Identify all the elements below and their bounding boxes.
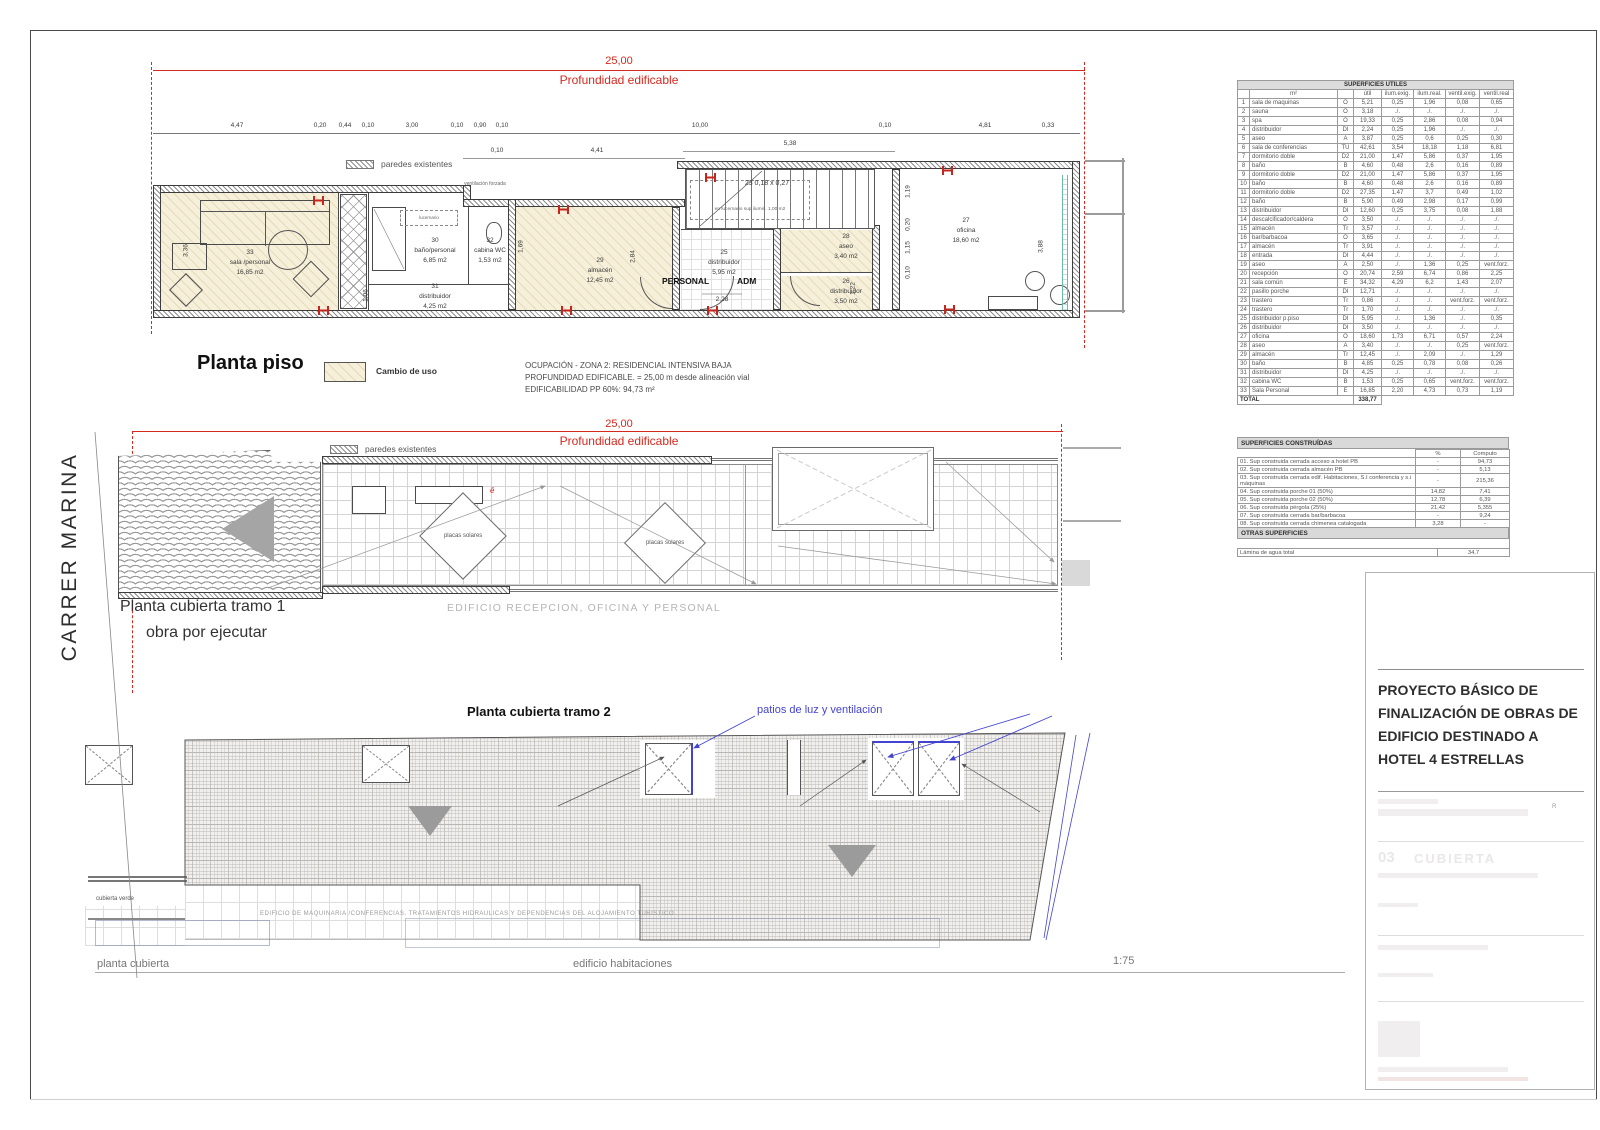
dim-label: 0,10 (487, 122, 517, 129)
table-row: 33Sala PersonalE 16,852,204,73 0,731,19 (1238, 387, 1514, 396)
piso-boundary-right (1084, 62, 1085, 348)
door-dim: 2,28 (702, 296, 742, 303)
wall-segment (773, 225, 781, 310)
walls-legend-label: paredes existentes (365, 444, 475, 454)
vent-forzada-label: ventilación forzada (460, 181, 510, 188)
red-marker (944, 305, 955, 314)
construidas-col-pct: % (1416, 450, 1461, 458)
faint-structure (95, 920, 270, 946)
title-block: PROYECTO BÁSICO DE FINALIZACIÓN DE OBRAS… (1365, 572, 1595, 1090)
table-row: 15almacénTr 3,57./../. ./../. (1238, 225, 1514, 234)
patio-xbox (918, 741, 960, 796)
table-row: 2saunaO 3,18./../. ./../. (1238, 108, 1514, 117)
table-row: 1sala de maquinasO 5,210,251,96 0,080,65 (1238, 99, 1514, 108)
red-drain-symbol: ȇ (490, 486, 494, 495)
faint-text-bar (1378, 903, 1418, 907)
utiles-header: ilum.exig. (1382, 90, 1414, 99)
wall-segment (463, 199, 685, 207)
chair (1025, 271, 1045, 291)
skylight-xbox (362, 745, 410, 783)
frame-top (30, 30, 1597, 31)
table-row: 29almacénTr 12,45./.2,09 ./.1,29 (1238, 351, 1514, 360)
piso-red-dim-line (153, 70, 1085, 71)
dim-label: 2,84 (630, 242, 637, 272)
partition (338, 193, 339, 310)
construidas-col-computo: Computo (1461, 450, 1510, 458)
room-label: 31distribuidor4,25 m2 (390, 282, 480, 311)
drawing-sheet: CARRER MARINA 25,00 Profundidad edificab… (0, 0, 1600, 1130)
scale-label: 1:75 (1113, 955, 1134, 967)
dim-label: 1,19 (905, 177, 912, 207)
tramo2-caption: EDIFICIO DE MAQUINARIA /CONFERENCIAS. TR… (260, 911, 690, 917)
wall-segment (153, 185, 161, 318)
lucernario-label: lucernario (401, 215, 457, 220)
tramo2-title: Planta cubierta tramo 2 (467, 704, 611, 719)
dim-label: 4,81 (970, 122, 1000, 129)
table-row: 4distribuidorDI 2,240,251,96 ./../. (1238, 126, 1514, 135)
table-row: 07. Sup construida cerrada bar/barbacoa-… (1238, 512, 1510, 520)
table-row: 8bañoB 4,600,482,6 0,160,89 (1238, 162, 1514, 171)
table-row: 3spaO 19,330,252,86 0,080,94 (1238, 117, 1514, 126)
faint-red-text-bar (1378, 1077, 1528, 1081)
faint-text-bar (1378, 799, 1438, 804)
table-row: 31distribuidorDI 4,25./../. ./../. (1238, 369, 1514, 378)
table-row: 04. Sup construida porche 01 (50%)14,827… (1238, 488, 1510, 496)
room-label: 26distribuidor3,50 m2 (801, 277, 891, 306)
tramo1-red-dim-label: Profundidad edificable (549, 434, 689, 448)
slope-triangle (408, 806, 452, 836)
personal-label: PERSONAL (662, 276, 702, 286)
dim-label: 0,10 (870, 122, 900, 129)
piso-dim-line2 (463, 158, 685, 159)
table-row: 14descalcificador/calderaO 3,50./../. ./… (1238, 216, 1514, 225)
piso-red-dim-value: 25,00 (589, 55, 649, 67)
title-block-rule (1378, 791, 1584, 792)
table-row: 16bar/barbacoaO 3,65./../. ./../. (1238, 234, 1514, 243)
tiled-roof-existing (118, 450, 321, 598)
green-roof-edge (88, 876, 187, 882)
table-row: 01. Sup construida cerrada acceso a hote… (1238, 458, 1510, 466)
stair-note: 23 0,18 x 0,27 (712, 180, 822, 187)
patios-annotation: patios de luz y ventilación (757, 704, 882, 716)
patio-xbox (872, 741, 914, 796)
table-row: Lámina de agua total34,7 (1238, 549, 1510, 557)
utiles-total-value: 338,77 (1354, 396, 1382, 405)
faint-text-bar (1378, 945, 1488, 950)
superficies-utiles-table: SUPERFICIES UTILES m² útil ilum.exig. il… (1237, 80, 1513, 405)
patio-xbox (645, 743, 693, 795)
adjacent-structure (1085, 213, 1125, 215)
cambio-uso-swatch (324, 362, 366, 382)
piso-red-dim-label: Profundidad edificable (549, 73, 689, 87)
table-row: 19aseoA 2,50./.1,36 0,25vent.forz. (1238, 261, 1514, 270)
faint-sheet-title: CUBIERTA (1414, 851, 1496, 866)
table-row: 17almacénTr 3,91./../. ./../. (1238, 243, 1514, 252)
bottom-rule (95, 972, 1345, 973)
red-marker (942, 166, 953, 175)
dim-label: 1,69 (518, 232, 525, 262)
red-marker (561, 306, 572, 315)
dim-label: 1,06 (363, 281, 370, 311)
side-table (172, 243, 207, 270)
utiles-header: útil (1354, 90, 1382, 99)
frame-right (1596, 30, 1597, 1100)
construidas-title: SUPERFICIES CONSTRUÍDAS (1237, 437, 1509, 449)
skylight (772, 447, 934, 531)
dim-label: 1,22 (850, 274, 857, 304)
desk (988, 296, 1038, 310)
dim-label: 4,41 (582, 147, 612, 154)
table-row: 26distribuidorDI 3,50./../. ./../. (1238, 324, 1514, 333)
adjacent-structure (1085, 310, 1125, 312)
table-row: 30bañoB 4,850,250,78 0,080,26 (1238, 360, 1514, 369)
wall-segment (153, 310, 1080, 318)
dim-label: 5,38 (775, 140, 805, 147)
slope-triangle (828, 845, 876, 877)
slope-triangle (222, 496, 274, 562)
utiles-header-m2: m² (1250, 90, 1338, 99)
frame-left (30, 30, 31, 1100)
frame-bottom (30, 1099, 1597, 1100)
adjacent-structure (1085, 160, 1125, 162)
utiles-title: SUPERFICIES UTILES (1238, 81, 1514, 90)
utiles-header: ventil.real (1480, 90, 1514, 99)
roof-hatch-box (352, 486, 386, 514)
title-block-rule-faint (1378, 1001, 1584, 1002)
roof-joint (745, 464, 746, 586)
otras-superficies-table: OTRAS SUPERFICIES Lámina de agua total34… (1237, 527, 1509, 557)
cambio-uso-label: Cambio de uso (376, 366, 437, 376)
tramo1-title: Planta cubierta tramo 1 (120, 598, 285, 616)
wall-segment (892, 169, 900, 310)
piso-title: Planta piso (197, 352, 304, 375)
faint-text-bar (1378, 1067, 1508, 1072)
wall-segment (153, 185, 471, 193)
utiles-total-label: TOTAL (1238, 396, 1354, 405)
adjacent-structure (1063, 520, 1121, 522)
table-row: 7dormitorio dobleD2 21,001,475,86 0,371,… (1238, 153, 1514, 162)
dim-label: 0,10 (482, 147, 512, 154)
utiles-header: ventil.exig. (1446, 90, 1480, 99)
tramo1-red-dim-line (133, 431, 1063, 432)
table-row: 03. Sup construida cerrada edif. Habitac… (1238, 474, 1510, 488)
title-block-rule-faint (1378, 841, 1584, 842)
adjacent-structure (1122, 158, 1124, 313)
table-row: 24trasteroTr 1,70./../. ./../. (1238, 306, 1514, 315)
table-row: 13distribuidorDI 12,600,253,75 0,081,88 (1238, 207, 1514, 216)
tramo1-caption: EDIFICIO RECEPCION, OFICINA Y PERSONAL (447, 602, 721, 614)
table-row: 6sala de conferenciasTU 42,613,5418,18 1… (1238, 144, 1514, 153)
patio-pillar (787, 740, 801, 795)
label-edificio-habitaciones: edificio habitaciones (573, 958, 672, 970)
skylight-xbox (85, 745, 133, 785)
dim-label: 4,47 (222, 122, 252, 129)
green-roof-label: cubierta verde (96, 896, 134, 902)
table-row: 12bañoB 5,900,492,98 0,170,99 (1238, 198, 1514, 207)
street-name: CARRER MARINA (58, 427, 82, 687)
project-title: PROYECTO BÁSICO DE FINALIZACIÓN DE OBRAS… (1378, 679, 1584, 771)
walls-legend-swatch (346, 160, 374, 169)
dim-label: 10,00 (685, 122, 715, 129)
piso-boundary-left (151, 62, 152, 334)
table-row: 11dormitorio dobleD2 27,351,473,7 0,491,… (1238, 189, 1514, 198)
table-row: 05. Sup construida porche 02 (50%)12,786… (1238, 496, 1510, 504)
table-row: 21sala comúnE 34,324,296,2 1,432,07 (1238, 279, 1514, 288)
piso-dim-line (153, 133, 1080, 134)
table-row: 02. Sup construida cerrada almacén PB-5,… (1238, 466, 1510, 474)
tramo1-red-dim-value: 25,00 (589, 418, 649, 430)
dim-label: 3,36 (183, 236, 190, 266)
table-row: 5aseoA 3,870,250,6 0,250,30 (1238, 135, 1514, 144)
title-block-rule-faint (1378, 935, 1584, 936)
stair-note2: en lucernario sup ilumin. 1,00 m2 (685, 207, 815, 212)
tramo1-subtitle: obra por ejecutar (146, 624, 267, 642)
roof-edge (510, 589, 1058, 592)
wall-segment (1072, 161, 1080, 318)
walls-legend-swatch (330, 445, 358, 454)
red-marker (558, 205, 569, 214)
window-glazing (1062, 175, 1068, 310)
room-label: 28aseo3,40 m2 (801, 232, 891, 261)
adm-label: ADM (737, 276, 773, 286)
adjacent-structure (1062, 560, 1090, 586)
dim-label: 0,33 (1033, 122, 1063, 129)
room-label: 32cabina WC1,53 m2 (455, 236, 525, 265)
dim-label: 3,88 (1038, 232, 1045, 262)
tramo1-boundary-right (1061, 424, 1062, 660)
red-marker (313, 196, 324, 205)
wall-segment (677, 161, 1080, 169)
partition (781, 272, 872, 273)
faint-sheet-number: 03 (1378, 849, 1395, 866)
faint-mark: R (1552, 804, 1556, 810)
adjacent-structure (1063, 447, 1121, 449)
label-planta-cubierta: planta cubierta (97, 958, 169, 970)
faint-text-bar (1378, 973, 1433, 977)
sofa (200, 200, 330, 245)
dim-label: 0,10 (905, 258, 912, 288)
table-row: 27oficinaO 18,601,736,71 0,572,24 (1238, 333, 1514, 342)
table-row: 22pasillo porcheDI 12,71./../. ./../. (1238, 288, 1514, 297)
title-block-rule (1378, 669, 1584, 670)
utiles-header: ilum.real. (1414, 90, 1446, 99)
dim-label: 3,00 (397, 122, 427, 129)
otras-title: OTRAS SUPERFICIES (1237, 527, 1509, 539)
faint-structure (405, 918, 940, 948)
dim-label: 0,10 (353, 122, 383, 129)
table-row: 25distribuidor p.pisoDI 5,95./.1,36 ./.0… (1238, 315, 1514, 324)
room-label: 33sala /personal16,85 m2 (205, 248, 295, 277)
table-row: 9dormitorio dobleD2 21,001,475,86 0,371,… (1238, 171, 1514, 180)
wall-segment (322, 586, 510, 594)
walls-legend-label: paredes existentes (381, 159, 491, 169)
room-label: 25distribuidor5,95 m2 (679, 248, 769, 277)
red-marker (707, 306, 718, 315)
faint-logo (1378, 1021, 1420, 1057)
faint-text-bar (1378, 873, 1538, 878)
table-row: 20recepciónO 20,742,596,74 0,862,25 (1238, 270, 1514, 279)
table-row: 18entradaDI 4,44./../. ./../. (1238, 252, 1514, 261)
lucernario-box: lucernario (400, 210, 458, 226)
piso-dim-line3 (683, 151, 895, 152)
table-row: 23trasteroTr 0,86./../. vent.forz.vent.f… (1238, 297, 1514, 306)
table-row: 28aseoA 3,40./../. 0,25vent.forz. (1238, 342, 1514, 351)
table-row: 06. Sup construida pérgola (25%)21,425,3… (1238, 504, 1510, 512)
table-row: 32cabina WCB 1,530,250,65 vent.forz.vent… (1238, 378, 1514, 387)
table-row: 10bañoB 4,600,482,6 0,160,89 (1238, 180, 1514, 189)
faint-text-bar (1378, 809, 1528, 816)
occupation-notes: OCUPACIÓN - ZONA 2: RESIDENCIAL INTENSIV… (525, 360, 855, 396)
wall-segment (322, 456, 712, 464)
red-marker (318, 306, 329, 315)
room-label: 27oficina18,60 m2 (921, 216, 1011, 245)
